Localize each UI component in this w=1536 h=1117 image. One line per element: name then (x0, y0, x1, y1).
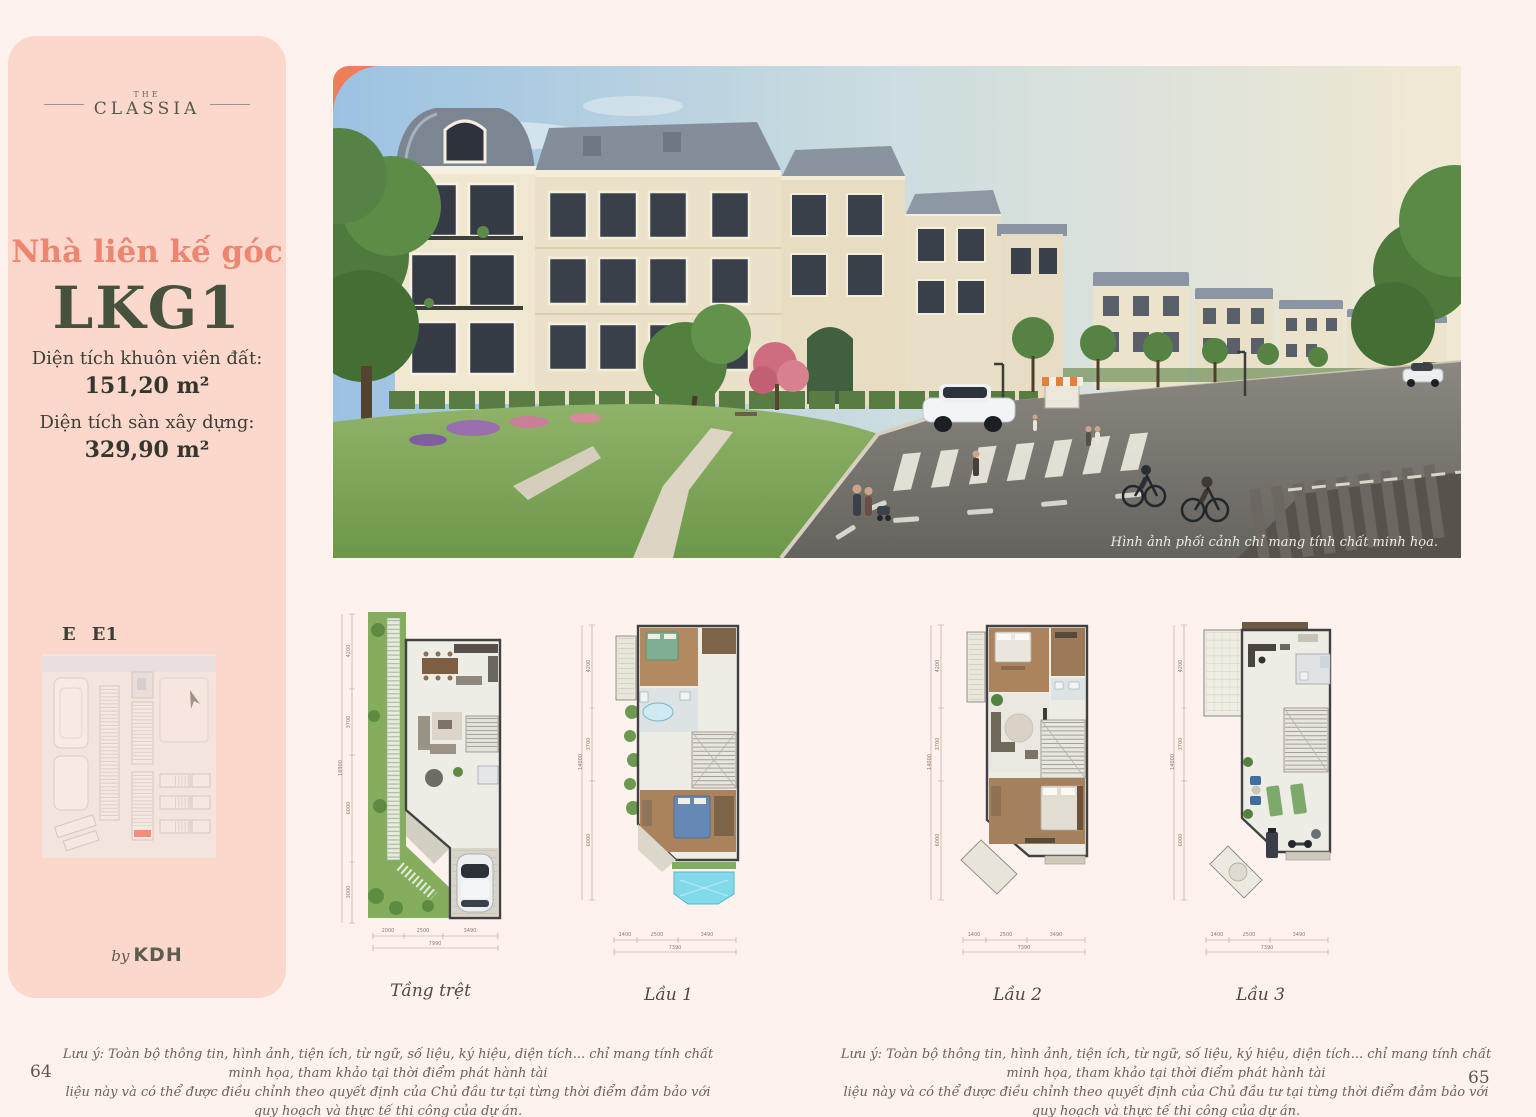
svg-text:3490: 3490 (1050, 932, 1063, 938)
floor-plan-level2: 4200 3700 6000 14000 (925, 600, 1110, 1005)
svg-text:2000: 2000 (382, 928, 395, 934)
developer-kdh: KDH (133, 944, 182, 966)
svg-text:7390: 7390 (1018, 945, 1031, 951)
brand-line-right (210, 104, 250, 105)
floor-area-label: Diện tích sàn xây dựng: (8, 412, 286, 433)
floor-area-value: 329,90 m² (8, 437, 286, 463)
kiosk (1042, 377, 1083, 408)
plan-label-level3: Lầu 3 (1168, 985, 1353, 1005)
site-map (40, 648, 218, 860)
floor-plan-level1: 4200 3700 6000 14000 (576, 600, 761, 1005)
corner-terrace (961, 840, 1017, 894)
disclaimer-right: Lưu ý: Toàn bộ thông tin, hình ảnh, tiện… (836, 1046, 1496, 1117)
svg-text:14000: 14000 (578, 754, 584, 770)
hero-rendering: Hình ảnh phối cảnh chỉ mang tính chất mi… (333, 66, 1461, 558)
land-area-value: 151,20 m² (8, 373, 286, 399)
plan-label-ground: Tầng trệt (338, 981, 523, 1001)
unit-type-title: Nhà liên kế góc (8, 234, 286, 270)
disclaimer-left: Lưu ý: Toàn bộ thông tin, hình ảnh, tiện… (58, 1046, 718, 1117)
hero-caption: Hình ảnh phối cảnh chỉ mang tính chất mi… (1110, 534, 1438, 550)
hero-section: Hình ảnh phối cảnh chỉ mang tính chất mi… (333, 66, 1461, 558)
svg-text:7390: 7390 (1261, 945, 1274, 951)
svg-text:6000: 6000 (1178, 834, 1184, 847)
brand-the: THE (133, 91, 160, 99)
disclaimer-line: Lưu ý: Toàn bộ thông tin, hình ảnh, tiện… (58, 1046, 718, 1084)
page-number-right: 65 (1468, 1068, 1490, 1088)
hero-scene: Hình ảnh phối cảnh chỉ mang tính chất mi… (333, 66, 1461, 558)
svg-text:3700: 3700 (586, 738, 592, 751)
svg-text:3700: 3700 (935, 738, 941, 751)
developer-by: by (111, 947, 129, 965)
svg-text:2500: 2500 (1000, 932, 1013, 938)
sidebar: THE CLASSIA Nhà liên kế góc LKG1 Diện tí… (8, 36, 286, 998)
svg-text:3490: 3490 (701, 932, 714, 938)
land-area-label: Diện tích khuôn viên đất: (8, 348, 286, 369)
svg-text:3490: 3490 (464, 928, 477, 934)
brand-classia: CLASSIA (94, 101, 201, 118)
brochure-page: THE CLASSIA Nhà liên kế góc LKG1 Diện tí… (0, 0, 1536, 1117)
site-map-labels: EE1 (62, 624, 118, 645)
page-number-left: 64 (30, 1062, 52, 1082)
svg-text:14000: 14000 (1170, 754, 1176, 770)
svg-text:3700: 3700 (346, 716, 352, 729)
plan-label-level1: Lầu 1 (576, 985, 761, 1005)
brand-line-left (44, 104, 84, 105)
map-unit-label: E1 (92, 624, 118, 645)
svg-text:6000: 6000 (346, 802, 352, 815)
lawn (333, 404, 878, 558)
svg-text:4200: 4200 (1178, 660, 1184, 673)
brand-logo: THE CLASSIA (8, 91, 286, 118)
svg-text:4200: 4200 (586, 660, 592, 673)
floor-plan-level3: 4200 3700 6000 14000 (1168, 600, 1353, 1005)
svg-text:14000: 14000 (927, 754, 933, 770)
svg-text:4200: 4200 (935, 660, 941, 673)
terrace (1204, 630, 1242, 716)
svg-text:7390: 7390 (669, 945, 682, 951)
svg-text:2500: 2500 (651, 932, 664, 938)
brand-wordmark: THE CLASSIA (94, 91, 201, 118)
plan-label-level2: Lầu 2 (925, 985, 1110, 1005)
svg-text:3000: 3000 (346, 886, 352, 899)
svg-text:4200: 4200 (346, 645, 352, 658)
svg-text:6000: 6000 (935, 834, 941, 847)
disclaimer-line: Lưu ý: Toàn bộ thông tin, hình ảnh, tiện… (836, 1046, 1496, 1084)
unit-code: LKG1 (8, 274, 286, 342)
treadmill (1266, 832, 1278, 858)
floor-plan-ground: 4200 3700 6000 3000 16900 (338, 596, 523, 1001)
disclaimer-line: liệu này và có thể được điều chỉnh theo … (836, 1084, 1496, 1117)
svg-text:2500: 2500 (1243, 932, 1256, 938)
svg-text:1400: 1400 (1211, 932, 1224, 938)
map-block-label: E (62, 624, 76, 645)
svg-text:16900: 16900 (338, 760, 344, 776)
svg-text:3490: 3490 (1293, 932, 1306, 938)
svg-text:1400: 1400 (619, 932, 632, 938)
svg-text:6000: 6000 (586, 834, 592, 847)
svg-text:2500: 2500 (417, 928, 430, 934)
map-highlight-unit (134, 830, 151, 837)
svg-text:3700: 3700 (1178, 738, 1184, 751)
disclaimer-line: liệu này và có thể được điều chỉnh theo … (58, 1084, 718, 1117)
park-bench (735, 412, 757, 416)
car (457, 854, 493, 912)
svg-text:7990: 7990 (429, 941, 442, 947)
svg-text:1400: 1400 (968, 932, 981, 938)
developer-logo: byKDH (8, 944, 286, 966)
